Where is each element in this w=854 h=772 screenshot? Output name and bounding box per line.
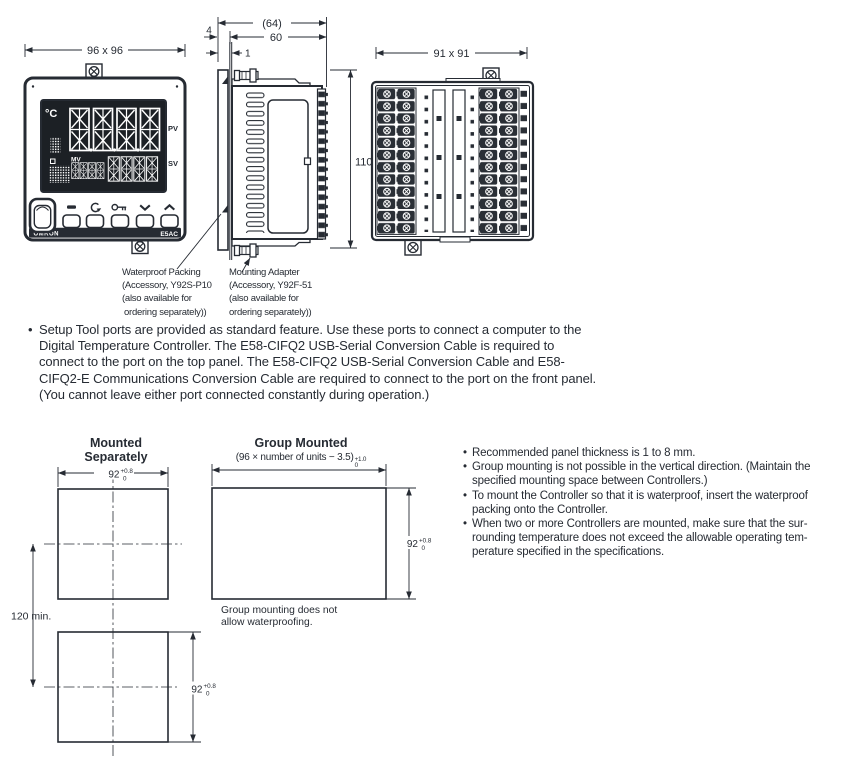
sv-label: SV <box>168 159 178 168</box>
pf-shift-icon <box>91 203 101 211</box>
model-label: E5AC <box>160 231 178 238</box>
side-bezel-depth-dimension: 4 <box>204 26 217 38</box>
up-icon <box>165 205 175 209</box>
note-line: Group mounting is not possible in the ve… <box>472 460 854 474</box>
tolerance-minus: 0 <box>422 545 426 552</box>
group-height-dimension: 92 +0.8 0 <box>386 488 432 599</box>
list-item: • When two or more Controllers are mount… <box>463 517 854 560</box>
side-body <box>232 86 322 239</box>
group-mounting-note: Group mounting does not allow waterproof… <box>221 605 337 630</box>
terminal-teeth <box>318 89 329 239</box>
rear-bottom-screw <box>405 240 421 255</box>
side-body-depth-dimension: 60 <box>230 31 327 45</box>
front-bottom-screw <box>132 239 148 254</box>
callout-line: (Accessory, Y92S-P10 <box>122 279 212 292</box>
note-line: Digital Temperature Controller. The E58-… <box>39 338 596 354</box>
side-view: (64) 60 4 1 110 <box>177 17 375 273</box>
side-height-label: 110 <box>355 157 373 169</box>
bullet-marker: • <box>463 460 467 474</box>
bullet-marker: • <box>463 489 467 503</box>
rear-top-screw <box>483 68 499 83</box>
indicator-dot-column-left <box>424 92 429 232</box>
center-channels <box>433 90 465 232</box>
note-line: (You cannot leave either port connected … <box>39 387 596 403</box>
front-bezel <box>25 78 185 240</box>
cutout-width-label: 92 <box>108 470 120 481</box>
group-height-label: 92 <box>407 539 419 550</box>
mv-label: MV <box>71 157 81 164</box>
callout-line: (also available for <box>122 292 212 305</box>
waterproof-packing-leader <box>177 214 221 269</box>
side-bezel <box>218 70 228 250</box>
mounting-adapter-top <box>232 69 310 86</box>
function-indicator-block <box>50 166 70 184</box>
sv-digits <box>108 157 157 181</box>
panel-section <box>230 42 232 260</box>
tolerance-minus: 0 <box>206 690 210 697</box>
front-top-screw <box>86 64 102 79</box>
callout-line: Waterproof Packing <box>122 266 212 279</box>
list-item: • Recommended panel thickness is 1 to 8 … <box>463 446 854 460</box>
waterproof-packing-wedge-top <box>222 76 229 85</box>
bullet-marker: • <box>463 446 467 460</box>
callout-line: (also available for <box>229 292 312 305</box>
rear-body <box>372 82 533 240</box>
callout-line: ordering separately)) <box>122 306 212 319</box>
note-line: connect to the port on the top panel. Th… <box>39 354 596 370</box>
setup-port-cover <box>30 199 55 232</box>
logo-band <box>29 228 181 238</box>
down-key <box>137 215 154 228</box>
note-line: perature specified in the specifications… <box>472 545 854 559</box>
status-indicator <box>51 159 56 164</box>
terminal-tab-column <box>519 88 529 234</box>
pv-digits <box>70 109 160 152</box>
front-view: 96 x 96 °C MV <box>25 44 185 254</box>
vent-slots <box>246 91 265 233</box>
side-bezel-depth-label: 4 <box>206 26 212 37</box>
terminal-bank-right <box>479 88 519 234</box>
bar-indicator <box>51 137 61 153</box>
tolerance-minus: 0 <box>355 463 367 469</box>
rear-width-dimension: 91 x 91 <box>376 47 527 61</box>
bullet-marker: • <box>28 322 32 338</box>
callout-line: (Accessory, Y92F-51 <box>229 279 312 292</box>
group-width-formula: (96 × number of units − 3.5)+1.00 <box>200 452 402 470</box>
side-body-depth-label: 60 <box>270 32 282 44</box>
datasheet-page: 96 x 96 °C MV <box>0 0 854 772</box>
note-line: Recommended panel thickness is 1 to 8 mm… <box>472 446 854 460</box>
key-glyph-row <box>67 203 174 211</box>
mode-key <box>112 215 129 228</box>
note-line: To mount the Controller so that it is wa… <box>472 489 854 503</box>
group-panel-cutout <box>212 488 386 599</box>
indicator-dot-column-right <box>470 92 475 232</box>
door-latch <box>305 158 311 165</box>
rear-bottom-strip <box>440 237 470 242</box>
front-dim-label: 96 x 96 <box>87 45 123 57</box>
pv-label: PV <box>168 124 178 133</box>
note-line: CIFQ2-E Communications Conversion Cable … <box>39 371 596 387</box>
tolerance-minus: 0 <box>123 475 127 482</box>
rear-view: 91 x 91 <box>372 47 533 256</box>
terminal-strip <box>318 89 326 239</box>
temperature-unit-indicator: °C <box>45 108 57 120</box>
list-item: • To mount the Controller so that it is … <box>463 489 854 517</box>
side-depth-total-dimension: (64) <box>218 17 327 31</box>
callout-line: Mounting Adapter <box>229 266 312 279</box>
bullet-marker: • <box>463 517 467 531</box>
cutout-width-dimension: 92 +0.8 0 <box>58 467 168 488</box>
side-panel-thickness-label: 1 <box>245 49 251 60</box>
panel-cutout-1 <box>58 489 168 599</box>
mounting-adapter-bottom <box>232 239 310 257</box>
tolerance-plus: +0.8 <box>121 468 134 475</box>
separate-mounting-drawing: 92 +0.8 0 120 min. 92 +0.8 0 <box>0 458 230 772</box>
rear-top-strip <box>446 79 500 85</box>
group-mounting-drawing: 92 +0.8 0 <box>200 452 470 627</box>
mv-digits <box>72 163 104 179</box>
note-line: specified mounting space between Control… <box>472 474 854 488</box>
pf-key <box>87 215 104 228</box>
callout-line: ordering separately)) <box>229 306 312 319</box>
mounting-adapter-callout: Mounting Adapter (Accessory, Y92F-51 (al… <box>229 266 312 319</box>
note-line: rounding temperature does not exceed the… <box>472 531 854 545</box>
cutout-height-label: 92 <box>191 685 203 696</box>
formula-base: (96 × number of units − 3.5) <box>236 452 354 463</box>
waterproof-packing-wedge-bottom <box>222 204 229 213</box>
side-height-dimension: 110 <box>330 70 375 248</box>
front-display: °C MV <box>41 100 166 192</box>
side-door <box>268 100 308 233</box>
waterproof-packing-callout: Waterproof Packing (Accessory, Y92S-P10 … <box>122 266 212 319</box>
note-line: allow waterproofing. <box>221 617 337 629</box>
operation-keys <box>63 215 178 228</box>
note-line: Setup Tool ports are provided as standar… <box>39 322 596 338</box>
note-line: packing onto the Controller. <box>472 503 854 517</box>
rear-dim-label: 91 x 91 <box>433 48 469 60</box>
adjust-icon <box>67 205 76 208</box>
note-line: Group mounting does not <box>221 605 337 617</box>
setup-ports-note: • Setup Tool ports are provided as stand… <box>39 322 596 403</box>
mounting-notes-list: • Recommended panel thickness is 1 to 8 … <box>463 446 854 560</box>
mode-key-icon <box>112 205 126 211</box>
up-key <box>161 215 178 228</box>
spacing-label: 120 min. <box>11 611 51 623</box>
front-width-dimension: 96 x 96 <box>25 44 185 58</box>
note-line: When two or more Controllers are mounted… <box>472 517 854 531</box>
tolerance-plus: +0.8 <box>204 683 217 690</box>
side-total-depth-label: (64) <box>262 18 282 30</box>
tolerance-plus: +0.8 <box>419 538 432 545</box>
panel-cutout-2 <box>58 632 168 742</box>
vertical-spacing-dimension: 120 min. <box>11 544 51 687</box>
list-item: • Group mounting is not possible in the … <box>463 460 854 488</box>
cutout-height-dimension: 92 +0.8 0 <box>168 632 216 742</box>
mounted-separately-title: Mounted Separately <box>58 436 174 464</box>
brand-logo: OMRON <box>34 232 60 238</box>
side-panel-thickness-dimension: 1 <box>206 49 251 60</box>
down-icon <box>140 205 150 209</box>
group-mounted-title: Group Mounted <box>211 436 391 450</box>
terminal-bank-left <box>377 88 416 234</box>
adjust-key <box>63 215 80 228</box>
